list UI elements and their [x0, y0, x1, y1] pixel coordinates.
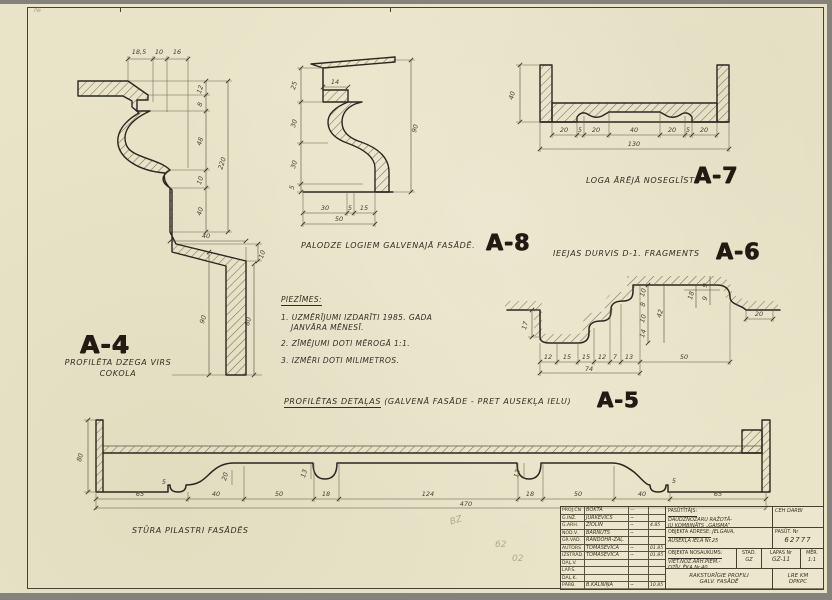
label-a5: A-5 — [597, 388, 640, 412]
tb-name: RANDOHR-ZAĻ. — [585, 537, 629, 544]
dim-label: 18 — [686, 290, 696, 300]
dim-label: 80 — [243, 316, 253, 326]
dim-label: 40 — [195, 206, 205, 216]
note-line: 1. UZMĒRĪJUMI IZDARĪTI 1985. GADA — [281, 313, 432, 323]
tb-sheet-value: GZ-11 — [764, 557, 798, 563]
a7-molding-hatch — [552, 103, 717, 122]
tb-name: TOMAŠĒVIČA — [585, 552, 629, 559]
tb-name: JURKEVIČS — [585, 515, 629, 522]
dim-label: 10 — [195, 175, 205, 185]
title-a8: PALODZE LOGIEM GALVENAJĀ FASĀDĒ. — [301, 241, 475, 250]
dim-label: 65 — [136, 490, 144, 498]
tb-signature — [629, 567, 649, 574]
sheet-number-mark: № — [34, 6, 41, 14]
dim-label: 15 — [360, 204, 368, 212]
drawing-a7-strip-section: 40 20 5 20 40 20 5 20 130 — [492, 58, 792, 170]
dim-label: 5 — [288, 184, 297, 190]
frame-tick — [390, 7, 391, 12]
dim-label: 12 — [195, 84, 205, 94]
tb-name — [585, 567, 629, 574]
tb-date: 01.85 — [649, 545, 665, 552]
tb-name: BOKTA — [585, 507, 629, 514]
tb-date — [649, 567, 665, 574]
scan-edge-top — [0, 0, 832, 4]
dim-label: 124 — [422, 490, 434, 498]
tb-signature: ~ — [629, 545, 649, 552]
dim-label: 18 — [526, 490, 534, 498]
tb-role: LAP.S. — [561, 567, 585, 574]
dim-label: 12 — [544, 353, 552, 361]
dim-label: 13 — [512, 468, 522, 478]
dim-label: 15 — [582, 353, 590, 361]
label-a8: A-8 — [486, 231, 530, 256]
tb-signature: ~ — [629, 515, 649, 522]
paper-background: № 18,5 10 16 12 8 48 10 40 220 40 10 90 … — [0, 0, 832, 600]
notes-heading: PIEZĪMES: — [281, 295, 322, 306]
dim-label: 20 — [220, 471, 230, 481]
title-block-row: LAP.S. — [561, 567, 665, 575]
dim-label: 12 — [598, 353, 606, 361]
scan-edge-right — [827, 0, 832, 600]
tb-role: DAĻ.K. — [561, 575, 585, 582]
dim-label: 90 — [410, 123, 420, 133]
title-a5-rest: (GALVENĀ FASĀDE - PRET AUSEKĻA IELU) — [384, 397, 571, 406]
a7-right-jamb — [717, 65, 729, 122]
pencil-mark: 02 — [512, 554, 523, 564]
dim-label: 8 — [639, 301, 648, 307]
dim-label: 25 — [289, 80, 299, 90]
dim-label: 15 — [563, 353, 571, 361]
scanned-drawing-sheet: { "sheet": { "corner_mark": "№", "pencil… — [0, 0, 832, 600]
tb-address-cell: OBJEKTA ADRESE: JELGAVA, AUSEKĻA IELA Nr… — [666, 528, 773, 548]
dim-label: 5 — [686, 126, 690, 134]
tb-date — [649, 560, 665, 567]
tb-address-line: JELGAVA, — [712, 529, 735, 535]
tb-date — [649, 507, 665, 514]
caption-a4-line2: COKOLA — [63, 369, 173, 378]
title-a5-main: PROFILĒTAS DETAĻAS — [284, 397, 381, 408]
a5-right-wall-band — [762, 420, 770, 492]
tb-role: DAĻ.V. — [561, 560, 585, 567]
tb-object-label: OBJEKTA NOSAUKUMS: — [668, 551, 722, 559]
dim-label: 42 — [655, 308, 665, 318]
tb-client-cell: PASŪTĪTĀJS: DAUDZNOZARU RAŽOTĀ- JU KOMBI… — [666, 507, 773, 527]
dim-label: 10 — [638, 287, 648, 297]
tb-client-row: PASŪTĪTĀJS: DAUDZNOZARU RAŽOTĀ- JU KOMBI… — [666, 507, 823, 528]
tb-role: G.INŽ. — [561, 515, 585, 522]
tb-signature — [629, 575, 649, 582]
tb-signature: ~ — [629, 552, 649, 559]
dim-label: 20 — [755, 310, 763, 318]
dim-label: 8 — [196, 101, 205, 107]
dim-label: 40 — [202, 232, 210, 240]
title-block-row: DAĻ.V. — [561, 560, 665, 568]
title-block-signatures: PROJ.ČNBOKTA— G.INŽ.JURKEVIČS~ G.ARH.ZIO… — [561, 507, 666, 589]
note-line: JANVĀRA MĒNESĪ. — [291, 323, 432, 333]
tb-signature: — — [629, 507, 649, 514]
tb-organization-cell: LRE KM DPKPC — [773, 569, 823, 589]
tb-client-label: PASŪTĪTĀJS: — [668, 509, 697, 517]
tb-role: AUTORS — [561, 545, 585, 552]
title-block-row: PĀRB.B.KALNIŅA~10.85 — [561, 582, 665, 589]
tb-date: 10.85 — [649, 582, 665, 589]
dim-label: 20 — [668, 126, 676, 134]
dim-label: 16 — [173, 48, 181, 56]
title-block-info: PASŪTĪTĀJS: DAUDZNOZARU RAŽOTĀ- JU KOMBI… — [666, 507, 823, 589]
dim-label: 10 — [638, 313, 648, 323]
dim-label: 5 — [162, 478, 166, 486]
dim-label: 50 — [275, 490, 283, 498]
drawing-a6-door-fragment: 17 12 15 15 12 7 13 50 74 10 8 10 14 42 … — [488, 262, 798, 390]
tb-stage-value: GZ — [739, 557, 759, 563]
tb-address-label: OBJEKTA ADRESE: — [668, 530, 711, 538]
a8-top-sliver — [311, 57, 395, 68]
title-block-row: GR.VAD.RANDOHR-ZAĻ. — [561, 537, 665, 545]
tb-subject-line: GALV. FASĀDĒ — [668, 579, 770, 585]
dim-label: 40 — [507, 90, 517, 100]
pencil-mark: 62 — [495, 540, 506, 550]
tb-corner-cell: CEH DARBI — [773, 507, 823, 527]
tb-role: IZSTRĀD. — [561, 552, 585, 559]
dim-label: 7 — [613, 353, 618, 361]
tb-org-line: DPKPC — [775, 579, 821, 585]
label-a4: A-4 — [80, 330, 130, 359]
tb-corner-text: CEH DARBI — [775, 508, 821, 514]
title-a5: PROFILĒTAS DETAĻAS (GALVENĀ FASĀDE - PRE… — [284, 397, 571, 406]
title-block-row: G.INŽ.JURKEVIČS~ — [561, 515, 665, 523]
a7-left-jamb — [540, 65, 552, 122]
title-a6: IEEJAS DURVIS D-1. FRAGMENTS — [553, 249, 700, 258]
dim-label: 50 — [574, 490, 582, 498]
tb-signature: ~ — [629, 530, 649, 537]
dim-label: 80 — [75, 452, 85, 462]
scan-edge-bottom — [0, 593, 832, 600]
title-a7: LOGA ĀRĒJĀ NOSEGLĪSTE — [586, 176, 700, 185]
tb-signature — [629, 537, 649, 544]
dim-label: 10 — [155, 48, 163, 56]
tb-name: ZIOLIN — [585, 522, 629, 529]
dim-label: 50 — [335, 215, 343, 223]
tb-object-cell: OBJEKTA NOSAUKUMS: VIET.NOZ.ARH.PIEM.- D… — [666, 549, 737, 568]
tb-signature: ~ — [629, 522, 649, 529]
dim-label: 220 — [216, 156, 227, 170]
title-block-row: PROJ.ČNBOKTA— — [561, 507, 665, 515]
dim-label: 30 — [289, 159, 299, 169]
dim-label: 40 — [638, 490, 646, 498]
dim-label: 13 — [299, 468, 309, 478]
title-block-row: G.ARH.ZIOLIN~4.85 — [561, 522, 665, 530]
dim-label: 40 — [212, 490, 220, 498]
dim-label: 90 — [198, 314, 208, 324]
a5-left-wall-band — [96, 420, 103, 492]
note-line: 2. ZĪMĒJUMI DOTI MĒROGĀ 1:1. — [281, 339, 432, 349]
dim-label: 5 — [672, 477, 676, 485]
caption-corner-pilasters: STŪRA PILASTRI FASĀDĒS — [132, 526, 249, 535]
drawing-a8-sill-section: 25 30 30 5 90 14 30 5 15 50 — [283, 52, 463, 267]
tb-object-row: OBJEKTA NOSAUKUMS: VIET.NOZ.ARH.PIEM.- D… — [666, 549, 823, 569]
dim-label: 10 — [257, 249, 267, 259]
tb-name — [585, 560, 629, 567]
title-block-row: DAĻ.K. — [561, 575, 665, 583]
tb-subject-row: RAKSTURĪGIE PROFILI GALV. FASĀDĒ LRE KM … — [666, 569, 823, 589]
dim-label: 14 — [638, 328, 648, 338]
label-a6: A-6 — [716, 240, 760, 265]
title-block-row: IZSTRĀD.TOMAŠĒVIČA~01.85 — [561, 552, 665, 560]
tb-role: PROJ.ČN — [561, 507, 585, 514]
tb-role: NOD.V. — [561, 530, 585, 537]
dim-label: 5 — [348, 204, 352, 212]
title-block-row: NOD.V.BARNUTS~ — [561, 530, 665, 538]
tb-address-line: AUSEKĻA IELA Nr.25 — [668, 538, 770, 544]
tb-name: B.KALNIŅA — [585, 582, 629, 589]
tb-role: G.ARH. — [561, 522, 585, 529]
tb-date — [649, 515, 665, 522]
dim-label: 13 — [625, 353, 633, 361]
dim-label: 50 — [680, 353, 688, 361]
tb-date — [649, 575, 665, 582]
label-a7: A-7 — [694, 164, 738, 189]
tb-address-row: OBJEKTA ADRESE: JELGAVA, AUSEKĻA IELA Nr… — [666, 528, 823, 549]
tb-name — [585, 575, 629, 582]
dim-label: 470 — [460, 500, 472, 508]
tb-scale-value: 1:1 — [803, 557, 821, 563]
tb-stage-cell: STAD. GZ — [737, 549, 762, 568]
drawing-a5-facade-profile: 80 65 40 50 18 124 18 50 40 65 470 5 20 … — [58, 412, 830, 520]
dim-label: 18 — [322, 490, 330, 498]
dim-label: 20 — [700, 126, 708, 134]
tb-sheet-cell: LAPAS Nr GZ-11 — [762, 549, 801, 568]
notes-block: PIEZĪMES: 1. UZMĒRĪJUMI IZDARĪTI 1985. G… — [281, 295, 432, 366]
dim-label: 9 — [701, 295, 710, 301]
tb-name: BARNUTS — [585, 530, 629, 537]
dim-label: 20 — [560, 126, 568, 134]
dim-label: 48 — [195, 136, 205, 146]
tb-date: 4.85 — [649, 522, 665, 529]
dim-label: 20 — [592, 126, 600, 134]
a8-s-curve-band — [328, 102, 389, 192]
note-line: 3. IZMĒRI DOTI MILIMETROS. — [281, 356, 432, 366]
dim-label: 14 — [331, 78, 339, 86]
dim-label: 130 — [628, 140, 640, 148]
dim-label: 65 — [714, 490, 722, 498]
a6-dim-ticks — [530, 283, 775, 375]
a5-right-corner-block — [742, 430, 762, 453]
a8-step-block — [323, 90, 348, 102]
dim-label: 30 — [289, 118, 299, 128]
tb-signature — [629, 560, 649, 567]
title-block-row: AUTORSTOMAŠĒVIČA~01.85 — [561, 545, 665, 553]
caption-a4-line1: PROFILĒTA DZEGA VIRS — [63, 358, 173, 367]
frame-tick — [120, 7, 121, 12]
a5-wall-hatch-sliver — [103, 446, 762, 453]
dim-label: 17 — [520, 320, 530, 331]
dim-label: 30 — [321, 204, 329, 212]
title-block: PROJ.ČNBOKTA— G.INŽ.JURKEVIČS~ G.ARH.ZIO… — [560, 506, 824, 590]
tb-scale-cell: MĒR. 1:1 — [801, 549, 823, 568]
tb-client-line: JU KOMBINĀTS „GAISMA” — [668, 523, 770, 527]
dim-label: 18,5 — [132, 48, 146, 56]
dim-label: 74 — [585, 365, 593, 373]
tb-role: PĀRB. — [561, 582, 585, 589]
tb-object-line: DZĪV. ĒKA Nr.40 — [668, 565, 734, 568]
dim-label: 5 — [578, 126, 582, 134]
tb-date: 01.85 — [649, 552, 665, 559]
tb-subject-cell: RAKSTURĪGIE PROFILI GALV. FASĀDĒ — [666, 569, 773, 589]
dim-label: 40 — [630, 126, 638, 134]
tb-name: TOMAŠĒVIČA — [585, 545, 629, 552]
tb-signature: ~ — [629, 582, 649, 589]
tb-date — [649, 530, 665, 537]
tb-order-number: 62777 — [775, 537, 821, 543]
tb-order-cell: PASŪT. Nr 62777 — [773, 528, 823, 548]
tb-role: GR.VAD. — [561, 537, 585, 544]
tb-date — [649, 537, 665, 544]
a5-profile-line — [103, 463, 762, 492]
